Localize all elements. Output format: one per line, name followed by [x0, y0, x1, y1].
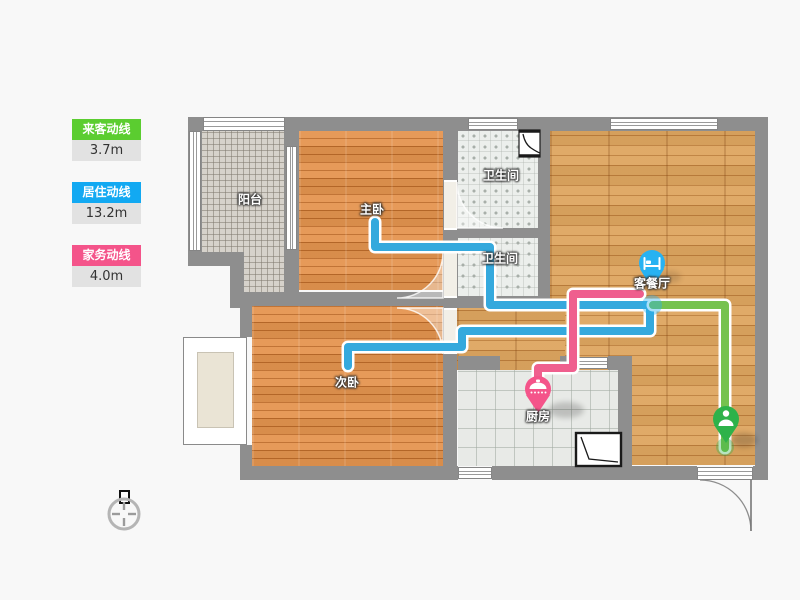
room-label-bathroom-top: 卫生间	[483, 167, 519, 184]
room-label-bathroom-mid: 卫生间	[482, 250, 518, 267]
room-label-second-bedroom: 次卧	[335, 374, 359, 391]
visitor-route-line	[653, 305, 725, 448]
door-arc-master-bedroom	[397, 252, 443, 298]
sink-counter-icon	[576, 433, 621, 466]
compass	[109, 491, 139, 529]
pin-shadow	[731, 433, 757, 447]
entrance-door-arc	[700, 480, 751, 531]
room-label-master-bedroom: 主卧	[360, 201, 384, 218]
door-arc-bathroom-top	[457, 182, 503, 228]
resident-route-glow	[642, 295, 662, 315]
shower-icon	[519, 130, 540, 157]
room-label-kitchen: 厨房	[526, 408, 550, 425]
room-label-living-dining: 客餐厅	[634, 275, 670, 292]
floorplan-canvas: 来客动线 3.7m 居住动线 13.2m 家务动线 4.0m	[0, 0, 800, 600]
entrance-door[interactable]	[700, 480, 751, 531]
north-indicator	[120, 491, 129, 503]
room-label-balcony: 阳台	[238, 191, 262, 208]
pin-shadow	[548, 402, 584, 418]
